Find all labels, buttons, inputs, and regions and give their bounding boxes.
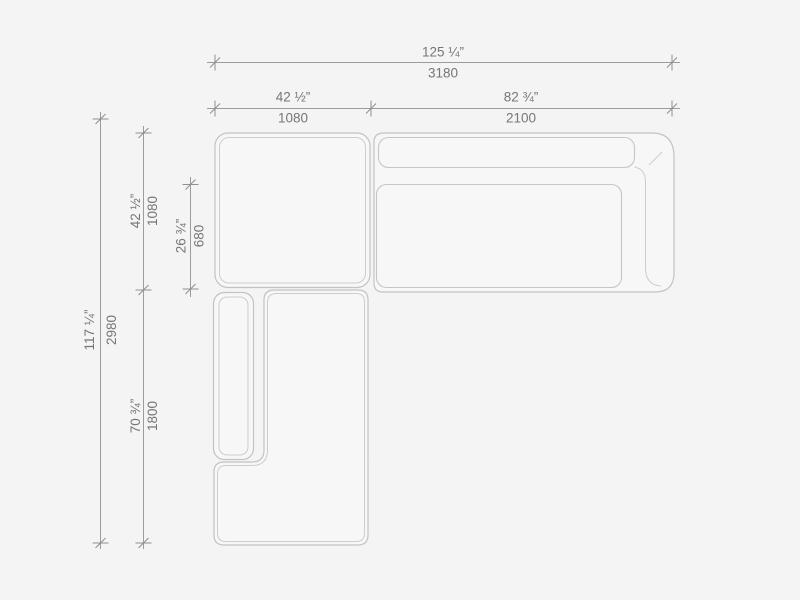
drawing-canvas: 125 ¼” 3180 42 ½” 1080 82 ¾” 2100 117 ¼”… (0, 0, 800, 600)
left-module-width-inches-label: 42 ½” (276, 90, 311, 105)
overall-width-mm-label: 3180 (428, 66, 458, 81)
seat-depth-inches-label: 26 ¾” (174, 219, 189, 254)
ottoman-module (215, 133, 370, 288)
seat-depth-mm-label: 680 (192, 225, 207, 248)
right-sofa-back-cushion (379, 138, 635, 168)
left-chaise-module (214, 290, 369, 545)
overall-width-inches-label: 125 ¼” (422, 45, 464, 60)
right-sofa-seat-cushion (377, 185, 622, 288)
overall-depth-mm-label: 2980 (104, 315, 119, 345)
left-module-width-mm-label: 1080 (278, 111, 308, 126)
dimension-lines (93, 55, 681, 550)
dimension-ticks (93, 55, 678, 549)
right-module-width-mm-label: 2100 (506, 111, 536, 126)
ottoman-outline (215, 133, 370, 288)
right-sofa-module (374, 133, 674, 292)
right-module-width-inches-label: 82 ¾” (504, 90, 539, 105)
sofa-dimension-drawing: 125 ¼” 3180 42 ½” 1080 82 ¾” 2100 117 ¼”… (0, 0, 800, 600)
lower-module-depth-mm-label: 1800 (145, 401, 160, 431)
overall-depth-inches-label: 117 ¼” (82, 309, 97, 350)
upper-module-depth-inches-label: 42 ½” (128, 194, 143, 229)
sofa-modules (214, 133, 675, 545)
upper-module-depth-mm-label: 1080 (145, 196, 160, 226)
lower-module-depth-inches-label: 70 ¾” (128, 399, 143, 434)
